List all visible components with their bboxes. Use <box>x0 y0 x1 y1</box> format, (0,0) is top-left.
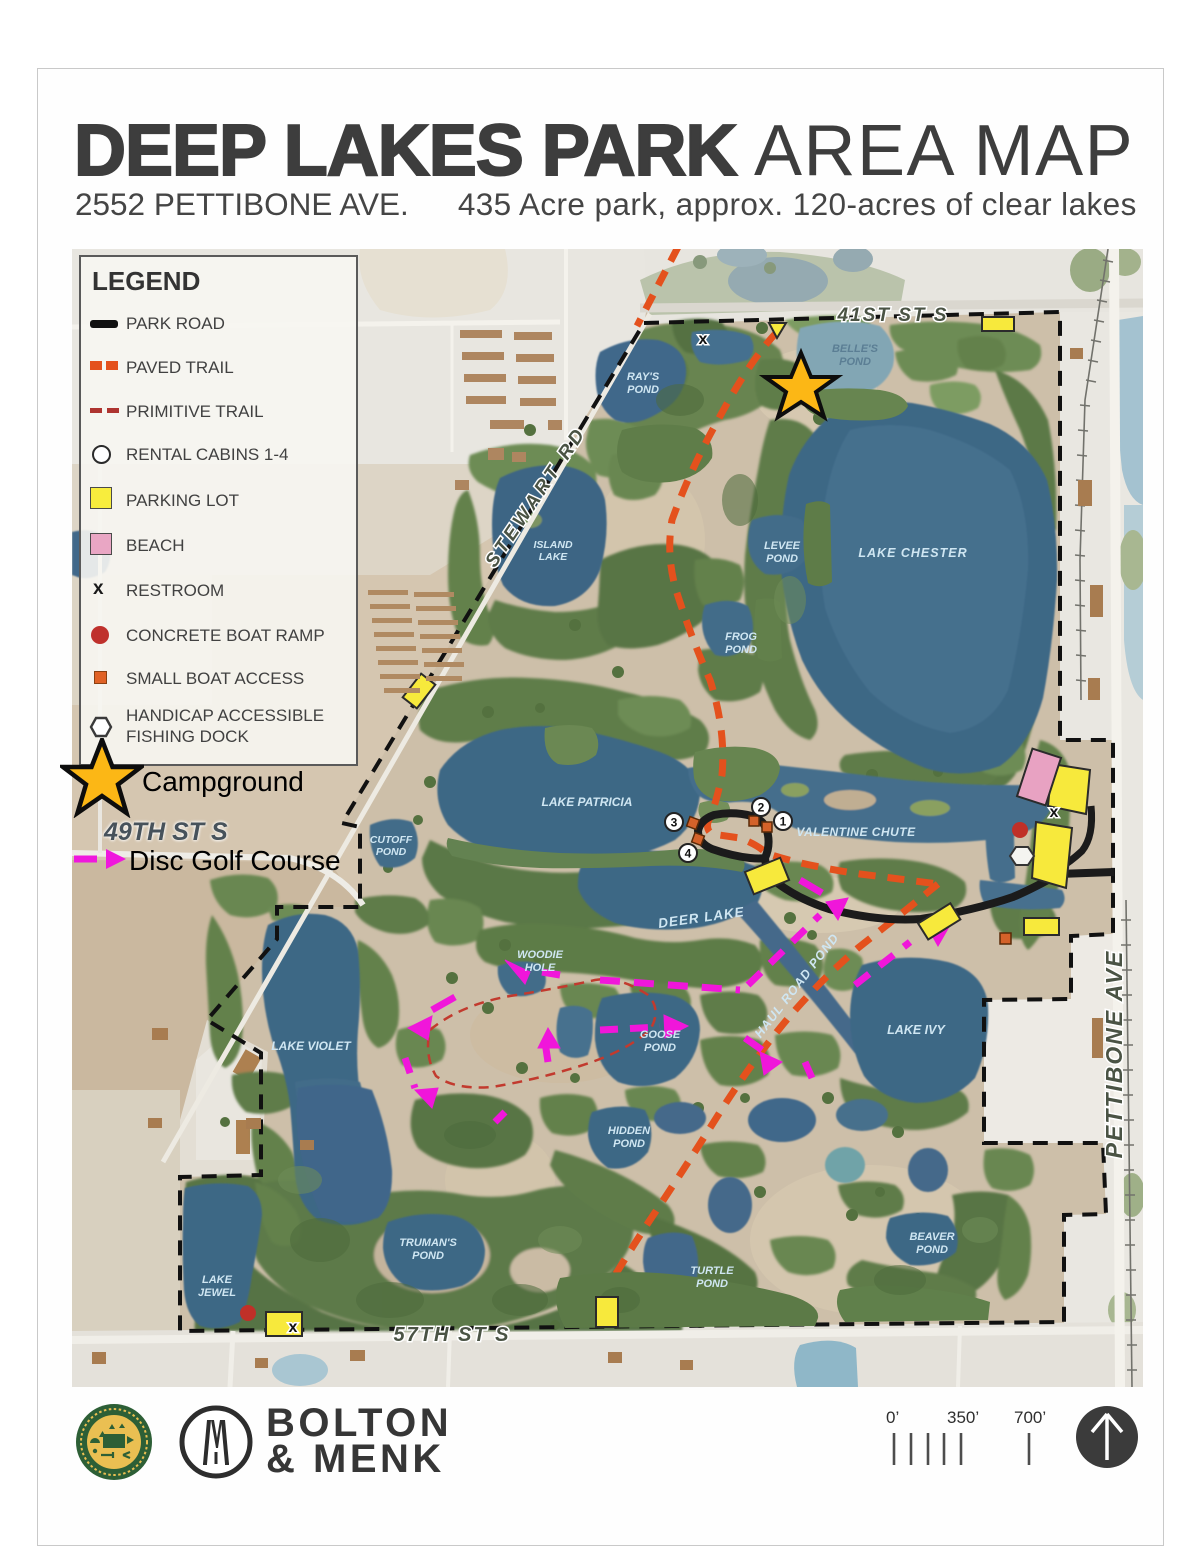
svg-text:FROG: FROG <box>725 631 757 643</box>
svg-text:x: x <box>289 1319 298 1336</box>
svg-text:LAKE: LAKE <box>202 1274 233 1286</box>
svg-text:57TH ST S: 57TH ST S <box>394 1324 511 1346</box>
svg-text:x: x <box>699 331 708 348</box>
svg-text:LAKE CHESTER: LAKE CHESTER <box>858 546 967 560</box>
svg-text:RAY'S: RAY'S <box>627 371 660 383</box>
svg-text:POND: POND <box>696 1278 728 1290</box>
svg-text:LAKE: LAKE <box>539 551 569 563</box>
svg-text:BEAVER: BEAVER <box>909 1231 954 1243</box>
svg-text:POND: POND <box>412 1250 444 1262</box>
svg-text:4: 4 <box>685 847 692 861</box>
svg-text:JEWEL: JEWEL <box>198 1287 236 1299</box>
svg-text:LAKE PATRICIA: LAKE PATRICIA <box>542 795 633 809</box>
svg-text:POND: POND <box>613 1138 645 1150</box>
svg-text:ISLAND: ISLAND <box>533 539 573 551</box>
svg-text:2: 2 <box>758 801 765 815</box>
svg-text:GOOSE: GOOSE <box>640 1029 681 1041</box>
svg-text:LEVEE: LEVEE <box>764 540 801 552</box>
svg-text:BELLE'S: BELLE'S <box>832 343 879 355</box>
svg-text:HIDDEN: HIDDEN <box>608 1125 651 1137</box>
svg-text:VALENTINE CHUTE: VALENTINE CHUTE <box>796 825 916 839</box>
svg-text:HOLE: HOLE <box>525 962 556 974</box>
svg-text:41ST ST S: 41ST ST S <box>837 305 949 326</box>
svg-text:TURTLE: TURTLE <box>690 1265 734 1277</box>
svg-text:WOODIE: WOODIE <box>517 949 563 961</box>
svg-text:PETTIBONE AVE: PETTIBONE AVE <box>1101 950 1127 1159</box>
svg-text:3: 3 <box>671 816 678 830</box>
svg-text:LAKE IVY: LAKE IVY <box>887 1023 946 1037</box>
svg-text:POND: POND <box>766 553 798 565</box>
svg-text:POND: POND <box>627 384 659 396</box>
svg-text:LAKE VIOLET: LAKE VIOLET <box>271 1039 352 1053</box>
svg-text:POND: POND <box>725 644 757 656</box>
svg-text:POND: POND <box>376 846 407 858</box>
svg-text:POND: POND <box>916 1244 948 1256</box>
svg-text:CUTOFF: CUTOFF <box>370 834 413 846</box>
svg-text:1: 1 <box>780 815 787 829</box>
svg-text:POND: POND <box>839 356 871 368</box>
svg-text:TRUMAN'S: TRUMAN'S <box>399 1237 457 1249</box>
svg-text:POND: POND <box>644 1042 676 1054</box>
svg-text:x: x <box>1050 804 1059 821</box>
